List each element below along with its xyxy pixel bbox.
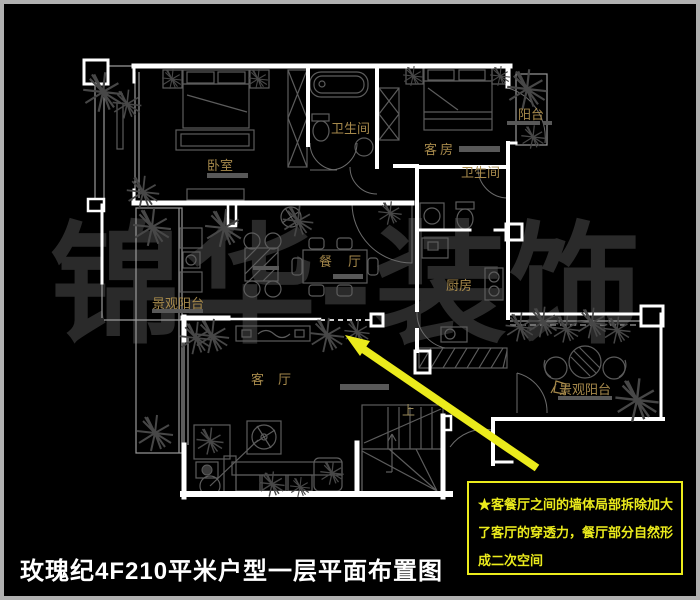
furniture <box>117 68 626 496</box>
room-label-living-room: 客厅 <box>251 372 305 387</box>
room-label-dining-room: 餐厅 <box>319 254 377 269</box>
room-label-guest-room: 客房 <box>424 142 456 157</box>
room-label-balcony-right: 景观阳台 <box>559 382 611 397</box>
room-label-kitchen: 厨房 <box>446 278 472 293</box>
room-label-bathroom-2: 卫生间 <box>461 165 500 180</box>
room-label-bedroom: 卧室 <box>207 158 233 173</box>
room-label-bathroom-1: 卫生间 <box>331 121 370 136</box>
annotation-line-2: 了客厅的穿透力，餐厅部分自然形 <box>478 519 673 547</box>
plants <box>83 66 658 497</box>
page-title: 玫瑰纪4F210平米户型一层平面布置图 <box>20 551 443 586</box>
annotation-box: ★客餐厅之间的墙体局部拆除加大 了客厅的穿透力，餐厅部分自然形 成二次空间 <box>467 481 683 575</box>
annotation-line-3: 成二次空间 <box>478 547 673 575</box>
annotation-line-1: ★客餐厅之间的墙体局部拆除加大 <box>478 491 673 519</box>
staircase <box>362 405 443 494</box>
stairs-up-label: 上 <box>402 403 415 418</box>
walls <box>84 60 663 497</box>
room-label-balcony-left: 景观阳台 <box>152 296 204 311</box>
room-labels: 卧室 卫生间 客房 阳台 卫生间 餐厅 厨房 景观阳台 客厅 景观阳台 上 <box>152 107 611 418</box>
floor-plan-canvas: 锦华-装饰 <box>0 0 700 600</box>
room-label-balcony-top: 阳台 <box>518 107 544 122</box>
